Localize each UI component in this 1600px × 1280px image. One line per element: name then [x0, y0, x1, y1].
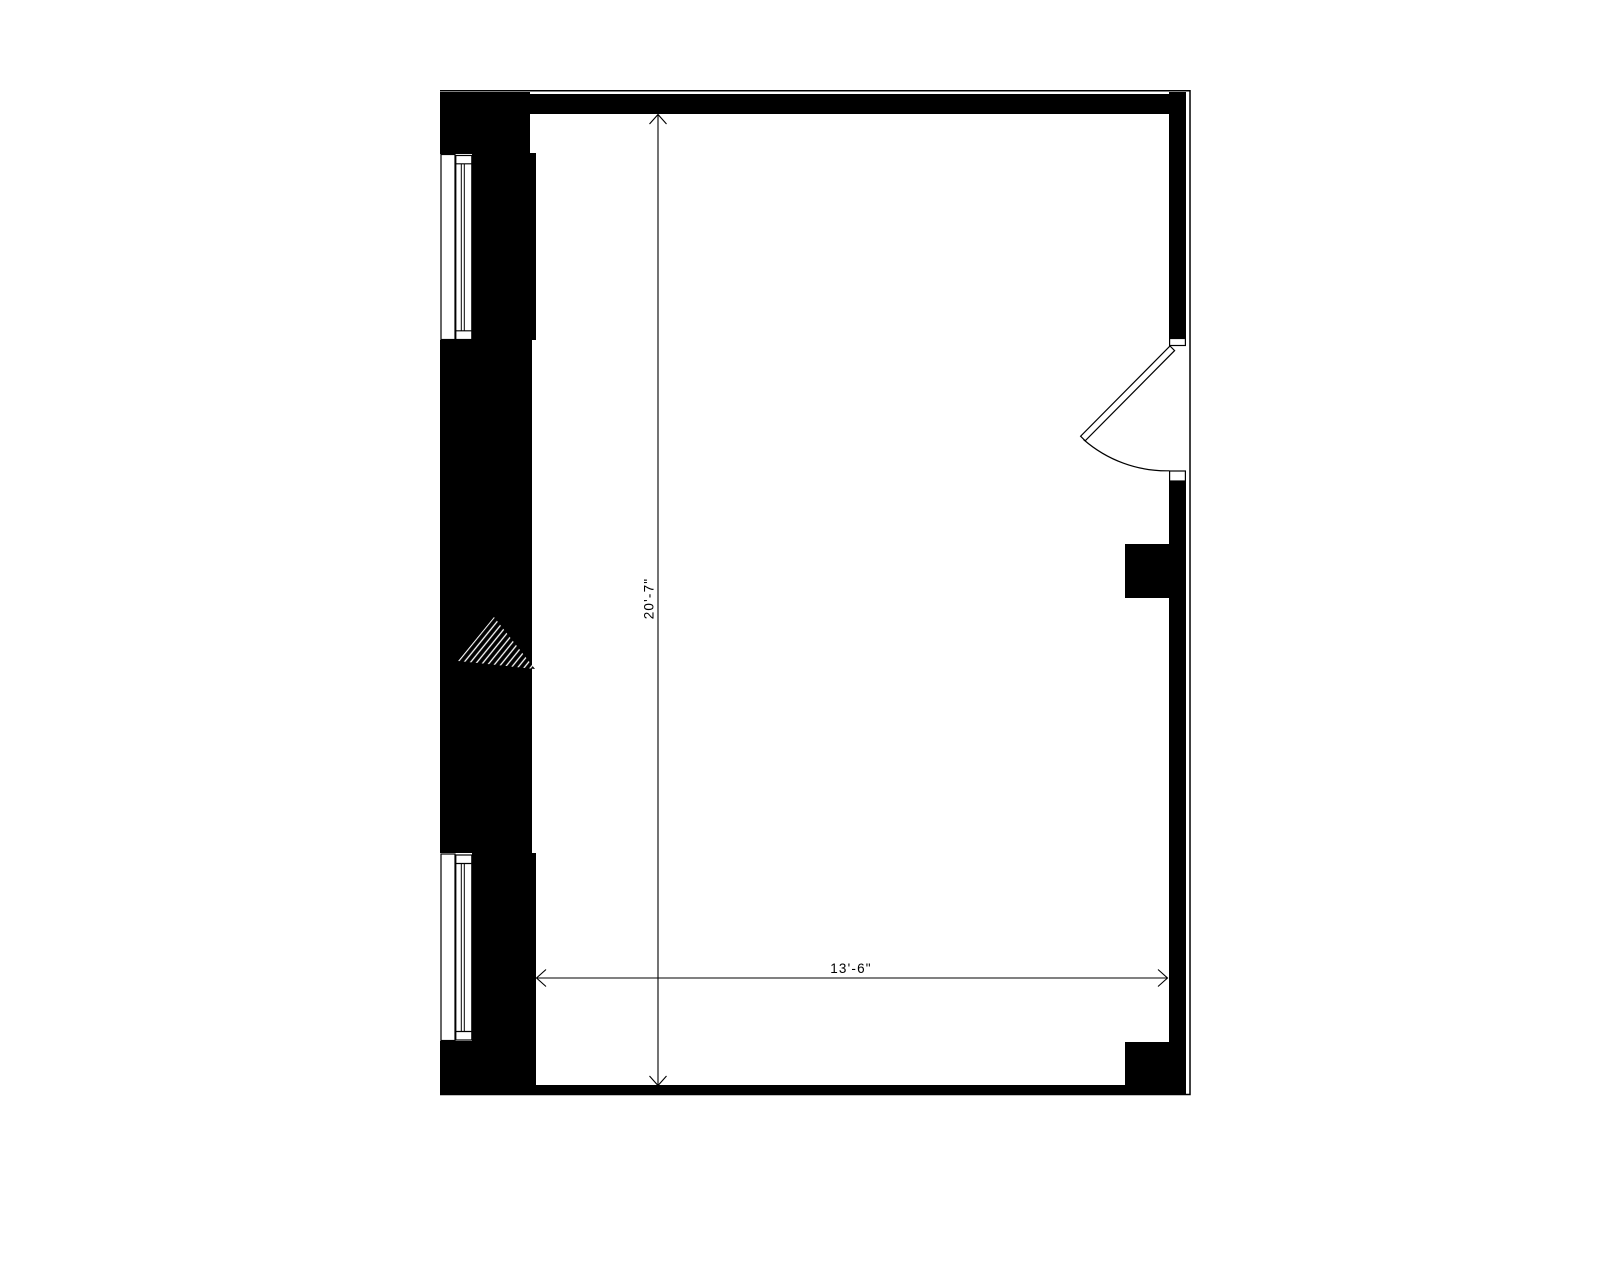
window2-recess — [441, 854, 455, 1041]
exterior-outline — [440, 91, 1190, 1095]
column-right-mid — [1125, 544, 1186, 598]
door — [1081, 339, 1186, 482]
window-2 — [441, 854, 472, 1041]
door-leaf — [1081, 346, 1175, 441]
dimension-horizontal-label: 13'-6" — [830, 961, 872, 976]
window1-recess — [441, 155, 455, 340]
door-jamb-top — [1170, 339, 1186, 346]
wall-left-window1-pier — [472, 153, 536, 340]
door-swing-arc — [1084, 440, 1170, 471]
column-corner-bottom-right — [1125, 1042, 1186, 1094]
wall-left-window2-pier — [472, 853, 536, 1041]
wall-right-upper — [1169, 92, 1186, 339]
walls — [440, 92, 1186, 1095]
dimension-vertical-label: 20'-7" — [642, 578, 657, 620]
door-jamb-bottom — [1170, 471, 1186, 481]
wall-bottom — [440, 1085, 1186, 1095]
window-1 — [441, 155, 472, 340]
wall-left-mid — [440, 340, 532, 853]
wall-left-pier-top — [440, 92, 530, 154]
floor-plan-canvas: 20'-7" 13'-6" — [0, 0, 1600, 1280]
wall-top — [530, 94, 1186, 114]
floor-plan-svg: 20'-7" 13'-6" — [0, 0, 1600, 1280]
